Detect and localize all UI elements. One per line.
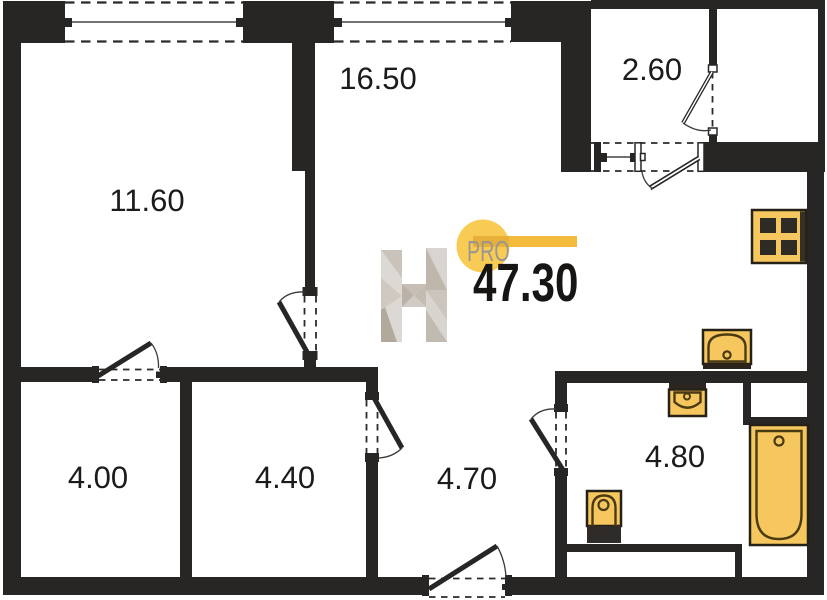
svg-text:11.60: 11.60 (109, 183, 184, 218)
svg-text:16.50: 16.50 (339, 61, 417, 96)
svg-text:4.80: 4.80 (645, 439, 705, 474)
svg-text:4.00: 4.00 (68, 460, 128, 495)
svg-text:4.70: 4.70 (437, 461, 497, 496)
svg-text:2.60: 2.60 (622, 52, 682, 87)
svg-text:47.30: 47.30 (473, 253, 578, 313)
svg-text:4.40: 4.40 (255, 460, 315, 495)
